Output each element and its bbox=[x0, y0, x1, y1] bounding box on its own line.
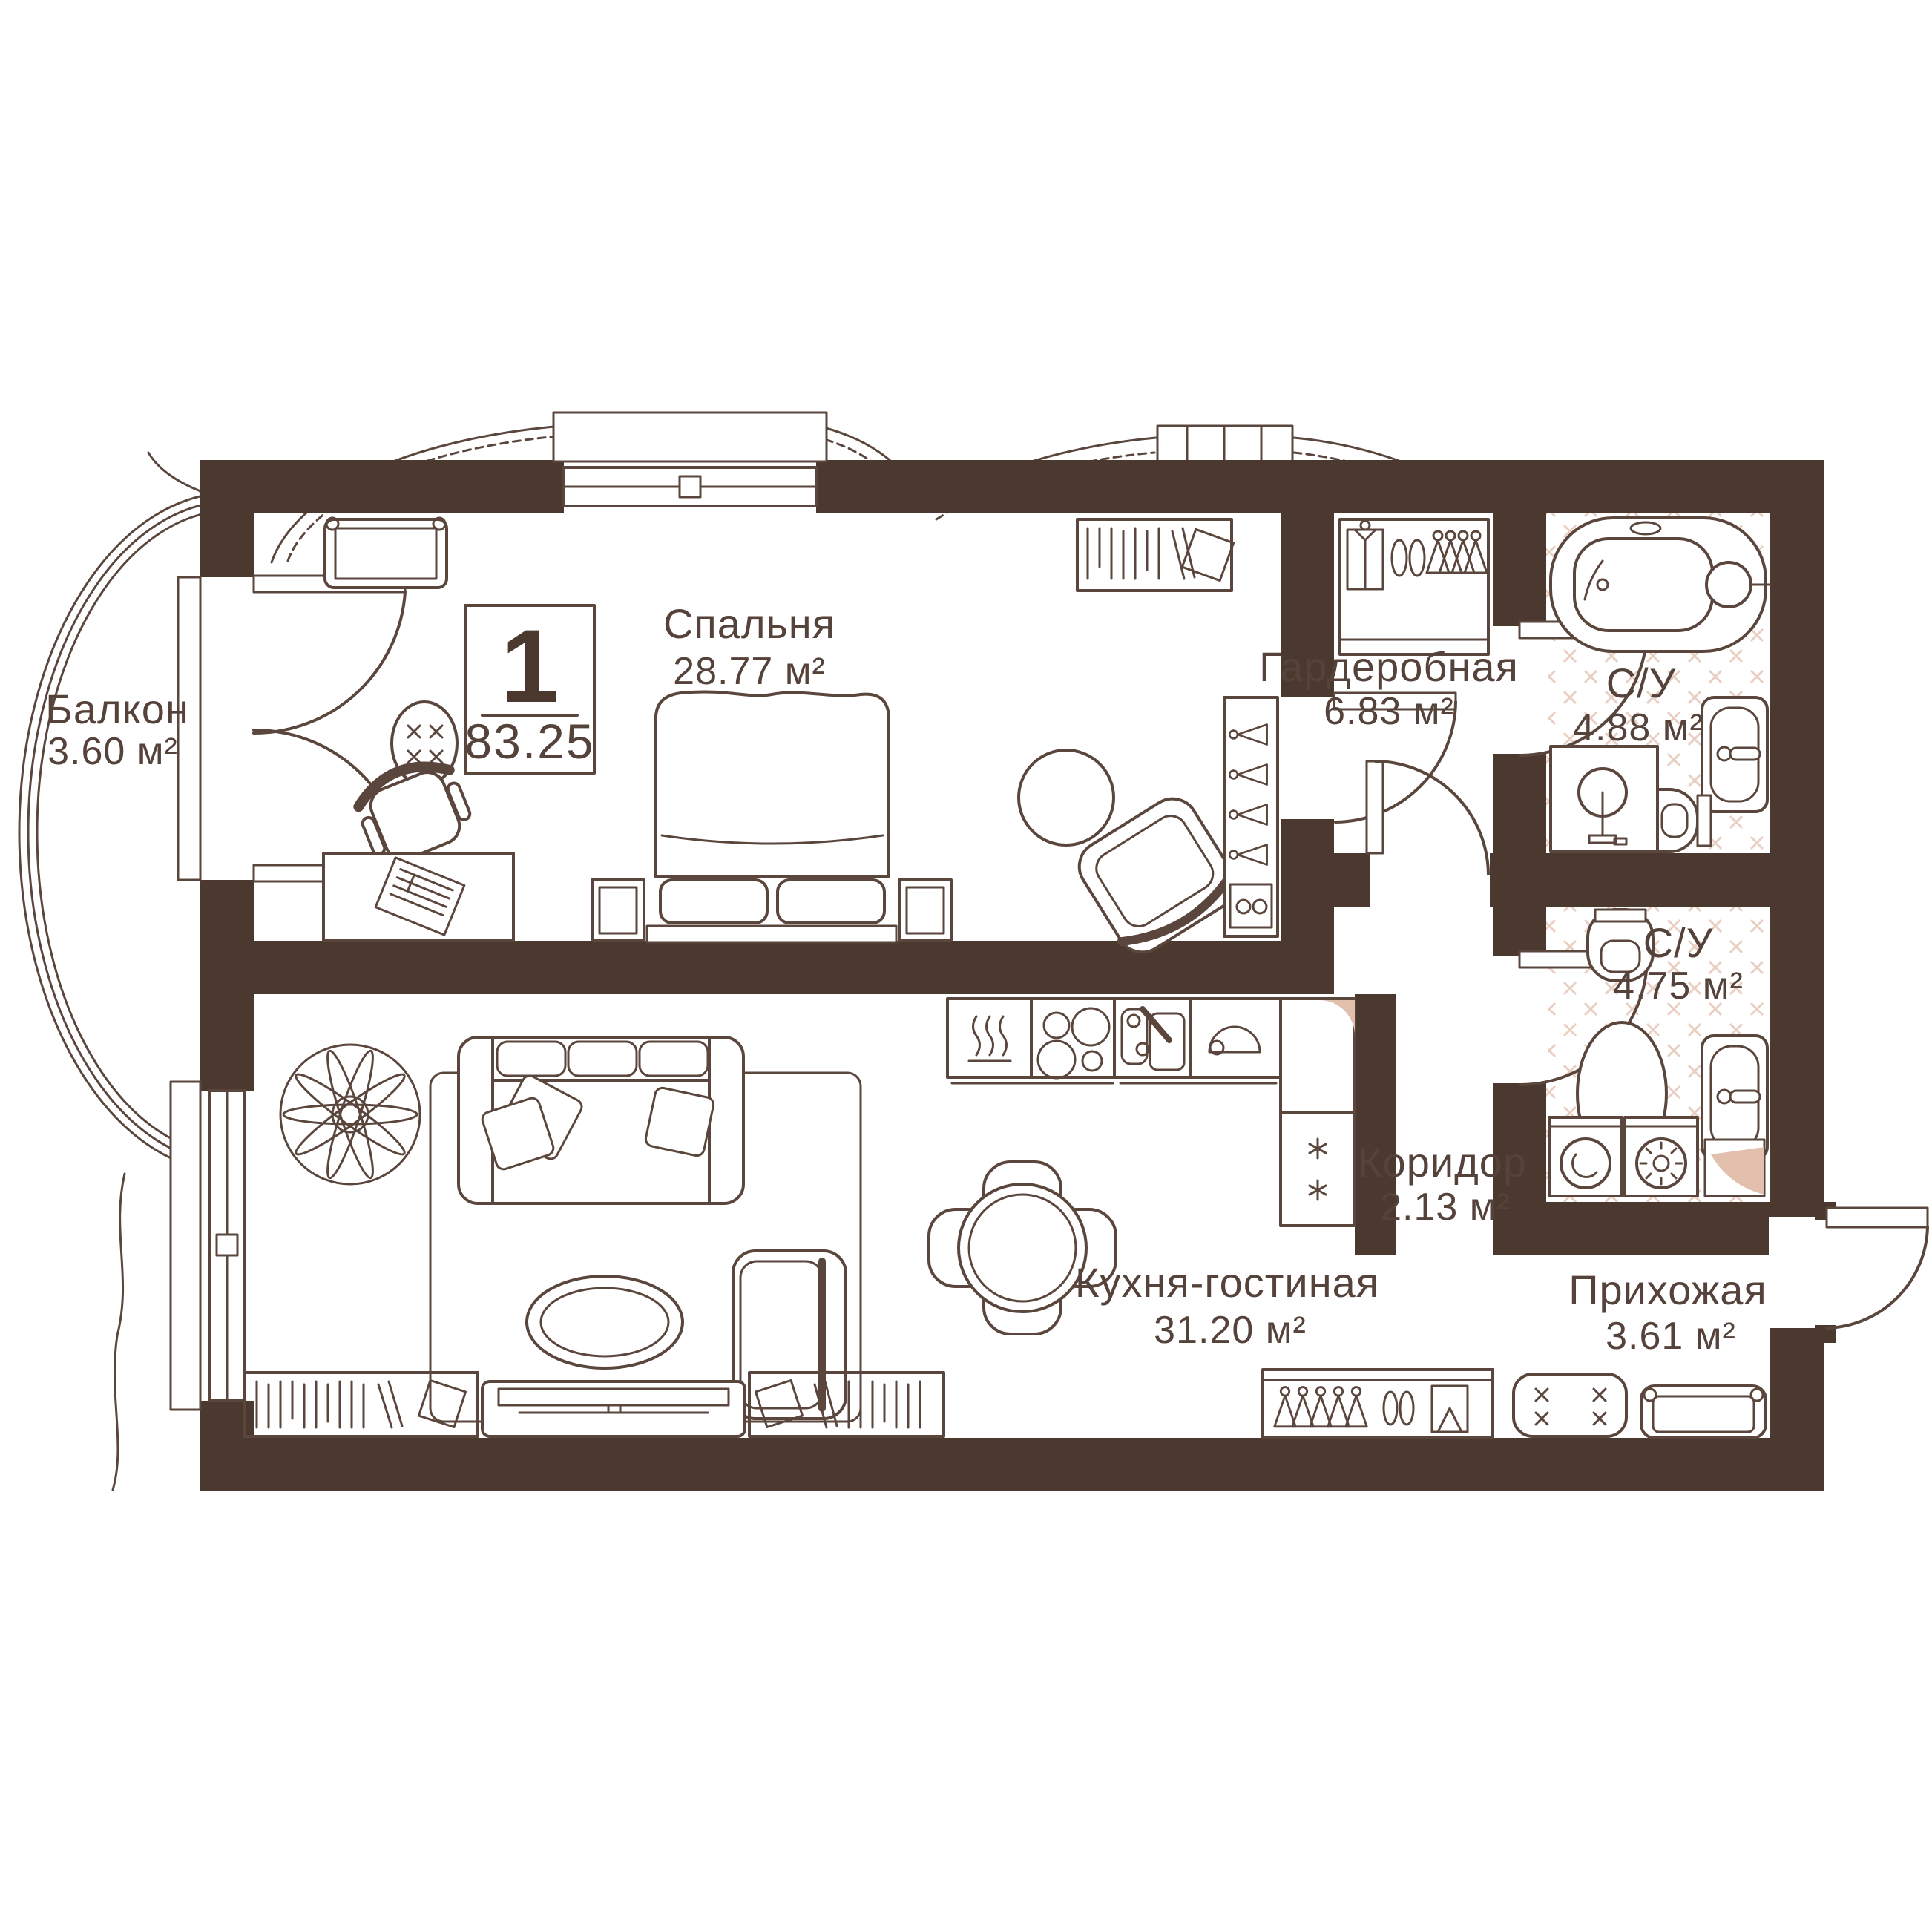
dining-table-icon bbox=[929, 1162, 1116, 1334]
fridge-icon bbox=[1281, 999, 1355, 1226]
bookshelf-icon bbox=[245, 1373, 478, 1436]
wall-bedroom-divider bbox=[254, 941, 1334, 994]
plant-icon bbox=[280, 1045, 420, 1184]
label-bedroom: Спальня bbox=[663, 600, 835, 647]
coffee-table-icon bbox=[527, 1276, 683, 1368]
ottoman-icon bbox=[1514, 1374, 1626, 1436]
area-balcony: 3.60 м² bbox=[47, 730, 178, 773]
bathtub-icon bbox=[1551, 518, 1770, 651]
hall-closet-icon bbox=[1263, 1370, 1493, 1438]
label-kitchen-living: Кухня-гостиная bbox=[1075, 1259, 1379, 1306]
hallway bbox=[1263, 1370, 1766, 1438]
dryer-icon bbox=[1625, 1117, 1698, 1196]
bookshelf-icon bbox=[1077, 519, 1234, 591]
side-table-icon bbox=[1019, 750, 1114, 845]
label-bathroom-2: С/У bbox=[1643, 919, 1714, 966]
area-bedroom: 28.77 м² bbox=[673, 650, 826, 693]
area-hallway: 3.61 м² bbox=[1606, 1315, 1736, 1358]
label-corridor: Коридор bbox=[1358, 1139, 1527, 1186]
bed-icon bbox=[592, 691, 951, 942]
area-bathroom-2: 4.75 м² bbox=[1613, 965, 1744, 1008]
wardrobe-room bbox=[1340, 519, 1488, 654]
sofa-icon bbox=[459, 1037, 743, 1203]
pillow-icon bbox=[660, 880, 767, 923]
info-box: 1 83.25 bbox=[464, 605, 594, 773]
closet-hangers-icon bbox=[1224, 697, 1278, 936]
label-balcony: Балкон bbox=[45, 686, 189, 732]
floor-plan: 1 83.25 bbox=[0, 0, 1932, 1932]
sink-icon bbox=[1702, 697, 1767, 812]
shower-icon bbox=[1551, 746, 1657, 852]
label-bathroom-1: С/У bbox=[1606, 660, 1677, 706]
living-room bbox=[245, 1037, 1116, 1436]
washer-icon bbox=[1549, 1117, 1622, 1196]
area-corridor: 2.13 м² bbox=[1380, 1186, 1511, 1229]
desk-icon bbox=[323, 853, 513, 941]
wall-bath-divider bbox=[1546, 853, 1824, 907]
living-window bbox=[171, 1082, 245, 1410]
entry-door bbox=[1815, 1202, 1928, 1343]
area-bathroom-1: 4.88 м² bbox=[1573, 706, 1703, 749]
pillow-icon bbox=[778, 880, 884, 923]
tv-console-icon bbox=[482, 1381, 745, 1436]
label-hallway: Прихожая bbox=[1568, 1266, 1767, 1313]
bedroom-window bbox=[553, 413, 827, 506]
bench-icon bbox=[1641, 1386, 1766, 1438]
area-kitchen-living: 31.20 м² bbox=[1154, 1309, 1307, 1352]
rooms-count: 1 bbox=[501, 608, 559, 724]
label-wardrobe: Гардеробная bbox=[1259, 643, 1519, 690]
area-wardrobe: 6.83 м² bbox=[1324, 690, 1454, 733]
pillow-icon bbox=[645, 1087, 715, 1157]
dresser-icon bbox=[325, 518, 447, 588]
total-area: 83.25 bbox=[464, 714, 594, 769]
vent-shaft bbox=[1705, 1140, 1764, 1196]
